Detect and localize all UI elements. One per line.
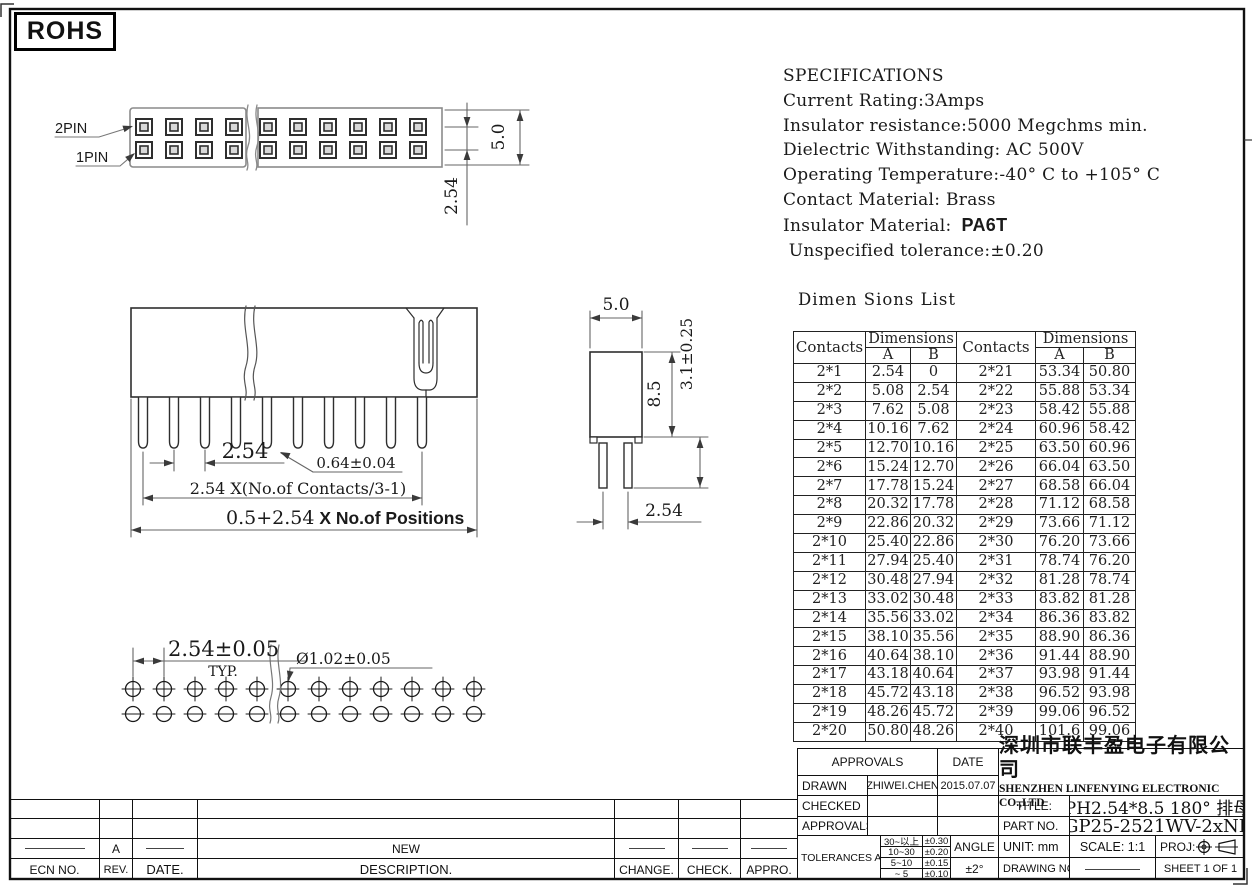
rev-header-rev: REV. — [100, 859, 133, 880]
rev-empty-cell — [679, 800, 741, 819]
typ-label: TYP. — [208, 664, 238, 680]
date-header: DATE — [938, 749, 999, 776]
table-cell: 45.72 — [911, 704, 957, 723]
table-cell: 2*9 — [794, 515, 866, 534]
table-cell: 45.72 — [866, 685, 911, 704]
table-cell: 48.26 — [911, 722, 957, 741]
table-cell: 53.34 — [1036, 364, 1084, 383]
dim-body-height: 8.5 — [645, 380, 665, 407]
table-cell: 91.44 — [1084, 666, 1136, 685]
col-a: A — [866, 348, 911, 364]
rev-header-check: CHECK. — [679, 859, 741, 880]
table-cell: 22.86 — [911, 534, 957, 553]
table-cell: 2*20 — [794, 722, 866, 741]
col-a: A — [1036, 348, 1084, 364]
table-cell: 2*5 — [794, 439, 866, 458]
title-label: TITLE: — [999, 796, 1070, 817]
bottom-view: 2.54±0.05 TYP. Ø1.02±0.05 — [122, 637, 485, 723]
rev-letter: A — [100, 839, 133, 859]
table-cell: 60.96 — [1036, 420, 1084, 439]
first-angle-projection-icon — [1195, 837, 1239, 857]
tolerance-value: ±0.20 — [923, 847, 951, 858]
table-cell: 2*10 — [794, 534, 866, 553]
table-row: 2*1127.9425.402*3178.7476.20 — [794, 552, 1136, 571]
rev-empty-cell — [198, 800, 615, 819]
table-cell: 12.70 — [866, 439, 911, 458]
table-cell: 38.10 — [911, 647, 957, 666]
table-cell: 27.94 — [911, 571, 957, 590]
table-cell: 2*36 — [957, 647, 1036, 666]
table-row: 2*1025.4022.862*3076.2073.66 — [794, 534, 1136, 553]
table-row: 2*1230.4827.942*3281.2878.74 — [794, 571, 1136, 590]
rev-empty-cell — [133, 800, 198, 819]
dim-depth: 5.0 — [489, 123, 509, 150]
approvals-header: APPROVALS — [798, 749, 938, 776]
table-cell: 2*27 — [957, 477, 1036, 496]
table-cell: 55.88 — [1084, 401, 1136, 420]
table-cell: 73.66 — [1084, 534, 1136, 553]
rev-empty-cell — [10, 819, 100, 839]
table-cell: 2*17 — [794, 666, 866, 685]
dim-hole-pitch: 2.54±0.05 — [168, 637, 279, 661]
table-cell: 2.54 — [866, 364, 911, 383]
contact-holes — [136, 119, 426, 158]
table-cell: 17.78 — [911, 496, 957, 515]
table-row: 2*25.082.542*2255.8853.34 — [794, 382, 1136, 401]
table-cell: 2*18 — [794, 685, 866, 704]
table-cell: 25.40 — [911, 552, 957, 571]
dimensions-table: Contacts Dimensions Contacts Dimensions … — [793, 331, 1136, 742]
table-cell: 20.32 — [866, 496, 911, 515]
table-cell: 58.42 — [1084, 420, 1136, 439]
table-cell: 2*29 — [957, 515, 1036, 534]
col-contacts: Contacts — [794, 332, 866, 364]
table-cell: 33.02 — [911, 609, 957, 628]
drawn-date: 2015.07.07 — [938, 776, 999, 796]
tolerance-range: ~ 5 — [881, 869, 923, 880]
table-cell: 10.16 — [911, 439, 957, 458]
table-row: 2*1435.5633.022*3486.3683.82 — [794, 609, 1136, 628]
proj-label: PROJ: — [1160, 840, 1195, 854]
company-block: 深圳市联丰盈电子有限公司 SHENZHEN LINFENYING ELECTRO… — [999, 749, 1245, 796]
spec-line: Insulator resistance:5000 Megchms min. — [783, 114, 1160, 139]
table-cell: 2*26 — [957, 458, 1036, 477]
table-cell: 81.28 — [1036, 571, 1084, 590]
table-cell: 2*6 — [794, 458, 866, 477]
table-cell: 96.52 — [1084, 704, 1136, 723]
table-cell: 78.74 — [1036, 552, 1084, 571]
tolerance-range: 30~以上 — [881, 836, 923, 847]
table-cell: 2*13 — [794, 590, 866, 609]
table-cell: 5.08 — [866, 382, 911, 401]
table-cell: 63.50 — [1084, 458, 1136, 477]
table-cell: 27.94 — [866, 552, 911, 571]
pin1-label: 1PIN — [76, 150, 108, 166]
rev-change-dash — [615, 839, 679, 859]
col-b: B — [911, 348, 957, 364]
table-cell: 2*11 — [794, 552, 866, 571]
table-row: 2*512.7010.162*2563.5060.96 — [794, 439, 1136, 458]
table-cell: 20.32 — [911, 515, 957, 534]
revision-strip: A NEW ECN NO. REV. DATE. DESCRIPTION. CH… — [10, 799, 797, 880]
col-b: B — [1084, 348, 1136, 364]
spec-line: Dielectric Withstanding: AC 500V — [783, 138, 1160, 163]
rev-header-change: CHANGE. — [615, 859, 679, 880]
table-cell: 12.70 — [911, 458, 957, 477]
table-cell: 43.18 — [866, 666, 911, 685]
pin — [624, 443, 632, 488]
table-row: 2*1538.1035.562*3588.9086.36 — [794, 628, 1136, 647]
table-row: 2*922.8620.322*2973.6671.12 — [794, 515, 1136, 534]
rev-header-ecn: ECN NO. — [10, 859, 100, 880]
table-cell: 7.62 — [866, 401, 911, 420]
dim-row-pitch: 2.54 — [442, 177, 462, 215]
table-cell: 40.64 — [866, 647, 911, 666]
table-cell: 15.24 — [866, 458, 911, 477]
title-value: PH2.54*8.5 180° 排母 — [1070, 796, 1245, 817]
dim-overall-formula: 0.5+2.54 X No.of Positions — [226, 507, 464, 529]
table-cell: 60.96 — [1084, 439, 1136, 458]
table-row: 2*1640.6438.102*3691.4488.90 — [794, 647, 1136, 666]
rev-check-dash — [679, 839, 741, 859]
table-cell: 2*21 — [957, 364, 1036, 383]
table-row: 2*717.7815.242*2768.5866.04 — [794, 477, 1136, 496]
table-cell: 5.08 — [911, 401, 957, 420]
rev-date-dash — [133, 839, 198, 859]
table-cell: 10.16 — [866, 420, 911, 439]
dim-pin-pitch: 2.54 — [645, 501, 683, 521]
tolerance-range: 5~10 — [881, 858, 923, 869]
table-cell: 63.50 — [1036, 439, 1084, 458]
table-cell: 48.26 — [866, 704, 911, 723]
tolerance-range: 10~30 — [881, 847, 923, 858]
rev-description: NEW — [198, 839, 615, 859]
specs-title: SPECIFICATIONS — [783, 64, 1160, 89]
table-cell: 2*8 — [794, 496, 866, 515]
table-cell: 2*19 — [794, 704, 866, 723]
table-row: 2*1845.7243.182*3896.5293.98 — [794, 685, 1136, 704]
table-cell: 22.86 — [866, 515, 911, 534]
table-cell: 86.36 — [1084, 628, 1136, 647]
dim-pitch: 2.54 — [222, 439, 269, 463]
table-cell: 71.12 — [1084, 515, 1136, 534]
table-cell: 43.18 — [911, 685, 957, 704]
table-cell: 76.20 — [1084, 552, 1136, 571]
rev-empty-cell — [679, 819, 741, 839]
table-cell: 73.66 — [1036, 515, 1084, 534]
rohs-badge: ROHS — [14, 12, 116, 51]
checked-label: CHECKED — [798, 796, 868, 817]
sheet-label: SHEET 1 OF 1 — [1156, 858, 1245, 880]
table-cell: 96.52 — [1036, 685, 1084, 704]
table-cell: 40.64 — [911, 666, 957, 685]
table-cell: 7.62 — [911, 420, 957, 439]
table-cell: 30.48 — [866, 571, 911, 590]
table-row: 2*37.625.082*2358.4255.88 — [794, 401, 1136, 420]
table-cell: 50.80 — [1084, 364, 1136, 383]
drawn-label: DRAWN — [798, 776, 868, 796]
table-cell: 2*35 — [957, 628, 1036, 647]
rev-empty-cell — [615, 819, 679, 839]
table-cell: 2*32 — [957, 571, 1036, 590]
table-cell: 68.58 — [1036, 477, 1084, 496]
checked-by — [868, 796, 938, 817]
table-row: 2*1948.2645.722*3999.0696.52 — [794, 704, 1136, 723]
table-cell: 86.36 — [1036, 609, 1084, 628]
scale-label: SCALE: 1:1 — [1070, 836, 1156, 858]
table-cell: 50.80 — [866, 722, 911, 741]
dim-hole-diameter: Ø1.02±0.05 — [296, 650, 391, 668]
hole-pattern — [122, 677, 485, 722]
part-no-label: PART NO. — [999, 817, 1070, 836]
table-cell: 33.02 — [866, 590, 911, 609]
table-cell: 2*7 — [794, 477, 866, 496]
spec-line: Contact Material: Brass — [783, 188, 1160, 213]
tolerances-label: TOLERANCES ARE — [798, 836, 881, 880]
spec-line-insulator-material: Insulator Material:PA6T — [783, 213, 1160, 239]
table-cell: 2*16 — [794, 647, 866, 666]
table-row: 2*615.2412.702*2666.0463.50 — [794, 458, 1136, 477]
table-cell: 2*22 — [957, 382, 1036, 401]
table-row: 2*820.3217.782*2871.1268.58 — [794, 496, 1136, 515]
table-cell: 66.04 — [1036, 458, 1084, 477]
rev-empty-cell — [100, 800, 133, 819]
table-cell: 2*24 — [957, 420, 1036, 439]
pin — [599, 443, 607, 488]
table-cell: 58.42 — [1036, 401, 1084, 420]
dim-body-width: 5.0 — [602, 295, 629, 315]
table-cell: 93.98 — [1036, 666, 1084, 685]
table-cell: 2*25 — [957, 439, 1036, 458]
table-cell: 76.20 — [1036, 534, 1084, 553]
specifications-block: SPECIFICATIONS Current Rating:3Amps Insu… — [783, 64, 1160, 263]
insulator-material-value: PA6T — [962, 215, 1008, 235]
table-cell: 35.56 — [911, 628, 957, 647]
drawing-sheet: 2PIN 1PIN 5.0 2.54 — [0, 0, 1253, 890]
table-cell: 2*28 — [957, 496, 1036, 515]
table-cell: 83.82 — [1036, 590, 1084, 609]
angle-label: ANGLE — [951, 836, 999, 858]
table-cell: 38.10 — [866, 628, 911, 647]
drawn-by: ZHIWEI.CHEN — [868, 776, 938, 796]
table-cell: 2*39 — [957, 704, 1036, 723]
table-cell: 2*4 — [794, 420, 866, 439]
table-cell: 2*2 — [794, 382, 866, 401]
table-row: 2*1743.1840.642*3793.9891.44 — [794, 666, 1136, 685]
table-cell: 2*30 — [957, 534, 1036, 553]
table-cell: 2*37 — [957, 666, 1036, 685]
front-view: 2.54 0.64±0.04 2.54 X(No.of Contacts/3-1… — [131, 306, 477, 537]
dim-contacts-formula: 2.54 X(No.of Contacts/3-1) — [190, 479, 407, 498]
table-cell: 99.06 — [1036, 704, 1084, 723]
tolerance-value: ±0.15 — [923, 858, 951, 869]
table-cell: 2*38 — [957, 685, 1036, 704]
approvals-label: APPROVALS — [798, 817, 868, 836]
table-cell: 0 — [911, 364, 957, 383]
rev-empty-cell — [10, 800, 100, 819]
checked-date — [938, 796, 999, 817]
drawing-no-value — [1070, 858, 1156, 880]
table-cell: 2*12 — [794, 571, 866, 590]
angle-value: ±2° — [951, 858, 999, 880]
table-cell: 66.04 — [1084, 477, 1136, 496]
table-cell: 83.82 — [1084, 609, 1136, 628]
rohs-label: ROHS — [27, 17, 103, 46]
col-dimensions: Dimensions — [1036, 332, 1136, 348]
corner-mark-top-left — [1, 4, 14, 17]
table-cell: 2*14 — [794, 609, 866, 628]
projection-cell: PROJ: — [1156, 836, 1245, 858]
dim-pin-width: 0.64±0.04 — [316, 454, 395, 472]
col-dimensions: Dimensions — [866, 332, 957, 348]
break-line — [247, 105, 250, 170]
title-block: APPROVALS DATE DRAWN ZHIWEI.CHEN 2015.07… — [797, 748, 1245, 880]
side-view: 5.0 8.5 3.1±0.25 2.54 — [577, 295, 708, 529]
table-cell: 91.44 — [1036, 647, 1084, 666]
table-cell: 2*31 — [957, 552, 1036, 571]
table-cell: 88.90 — [1084, 647, 1136, 666]
pins — [139, 398, 427, 448]
rev-ecn-dash — [10, 839, 100, 859]
table-header-row: Contacts Dimensions Contacts Dimensions — [794, 332, 1136, 348]
rev-empty-cell — [198, 819, 615, 839]
rev-header-description: DESCRIPTION. — [198, 859, 615, 880]
dim-pin-tail: 3.1±0.25 — [678, 318, 696, 390]
approvals-date — [938, 817, 999, 836]
tolerance-value: ±0.10 — [923, 869, 951, 880]
drawing-no-label: DRAWING NO. — [999, 858, 1070, 880]
table-row: 2*1333.0230.482*3383.8281.28 — [794, 590, 1136, 609]
part-no-value: GP25-2521WV-2xNP — [1070, 817, 1245, 836]
table-cell: 2*23 — [957, 401, 1036, 420]
table-cell: 35.56 — [866, 609, 911, 628]
table-cell: 2*15 — [794, 628, 866, 647]
spec-line: Unspecified tolerance:±0.20 — [783, 239, 1160, 264]
table-row: 2*12.5402*2153.3450.80 — [794, 364, 1136, 383]
rev-empty-cell — [133, 819, 198, 839]
table-cell: 53.34 — [1084, 382, 1136, 401]
table-cell: 30.48 — [911, 590, 957, 609]
table-cell: 17.78 — [866, 477, 911, 496]
table-cell: 2.54 — [911, 382, 957, 401]
top-view: 2PIN 1PIN 5.0 2.54 — [55, 103, 529, 225]
table-cell: 15.24 — [911, 477, 957, 496]
table-cell: 25.40 — [866, 534, 911, 553]
table-cell: 78.74 — [1084, 571, 1136, 590]
table-cell: 2*34 — [957, 609, 1036, 628]
approvals-by — [868, 817, 938, 836]
rev-appro-dash — [741, 839, 797, 859]
table-cell: 81.28 — [1084, 590, 1136, 609]
dimensions-list-title: Dimen Sions List — [798, 290, 956, 309]
company-name-cn: 深圳市联丰盈电子有限公司 — [999, 734, 1245, 782]
pin2-label: 2PIN — [55, 121, 87, 137]
tolerance-value: ±0.30 — [923, 836, 951, 847]
table-cell: 93.98 — [1084, 685, 1136, 704]
unit-label: UNIT: mm — [999, 836, 1070, 858]
rev-empty-cell — [741, 819, 797, 839]
table-cell: 71.12 — [1036, 496, 1084, 515]
table-cell: 2*1 — [794, 364, 866, 383]
table-cell: 2*33 — [957, 590, 1036, 609]
rev-header-date: DATE. — [133, 859, 198, 880]
rev-header-appro: APPRO. — [741, 859, 797, 880]
table-cell: 68.58 — [1084, 496, 1136, 515]
table-cell: 2*3 — [794, 401, 866, 420]
rev-empty-cell — [741, 800, 797, 819]
spec-line: Current Rating:3Amps — [783, 89, 1160, 114]
table-row: 2*410.167.622*2460.9658.42 — [794, 420, 1136, 439]
rev-empty-cell — [100, 819, 133, 839]
col-contacts: Contacts — [957, 332, 1036, 364]
table-cell: 55.88 — [1036, 382, 1084, 401]
table-cell: 88.90 — [1036, 628, 1084, 647]
insulator-material-label: Insulator Material: — [783, 216, 952, 236]
rev-empty-cell — [615, 800, 679, 819]
spec-line: Operating Temperature:-40° C to +105° C — [783, 163, 1160, 188]
